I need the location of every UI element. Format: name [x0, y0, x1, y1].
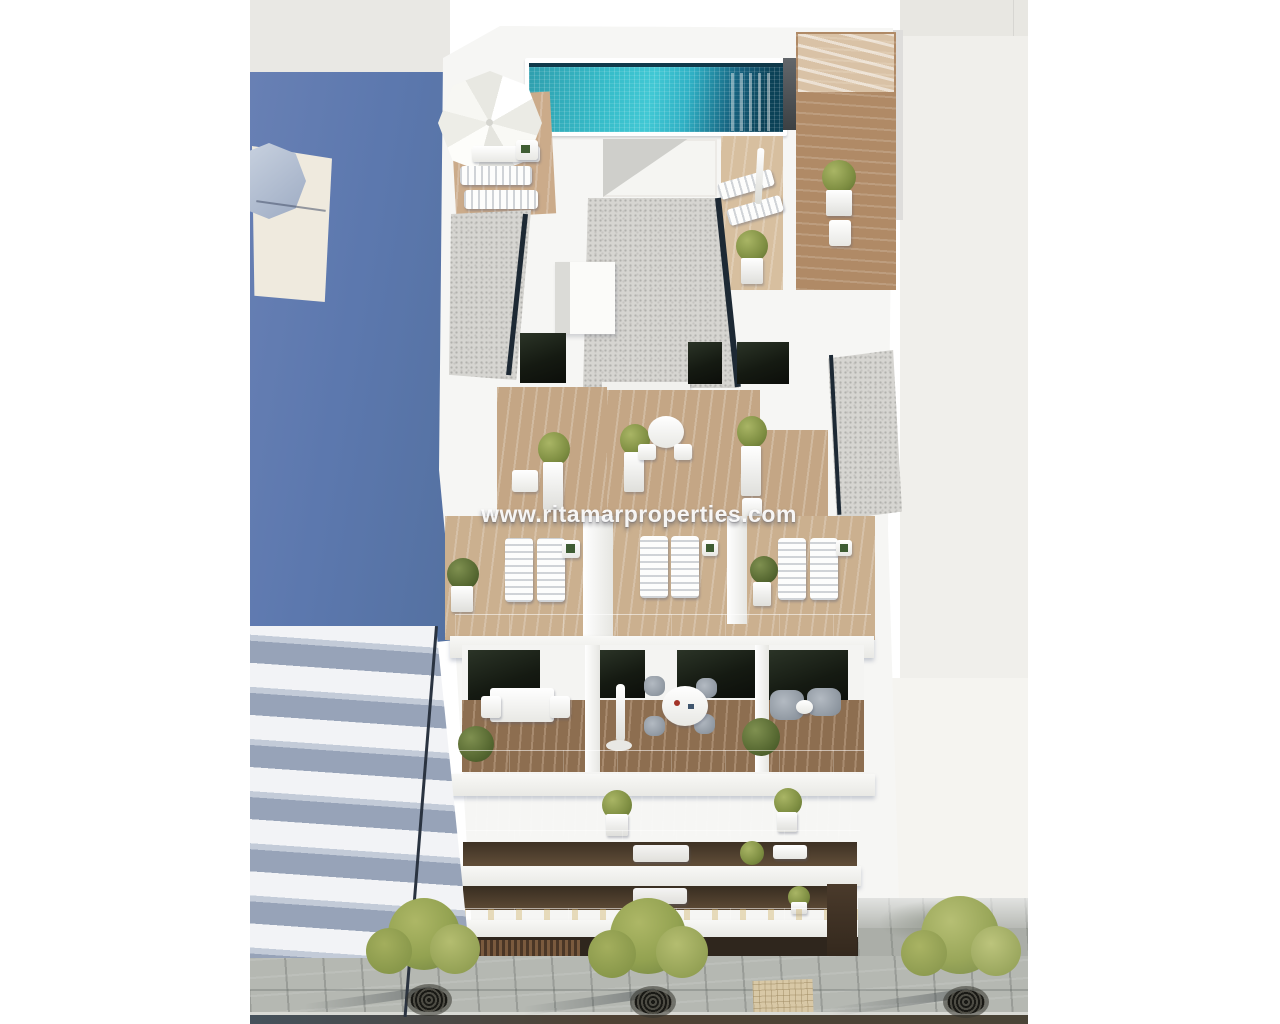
solarium-lounger-1a — [505, 538, 533, 602]
tree-3-foliage-b — [901, 930, 947, 976]
solarium-lounger-2a — [640, 536, 668, 598]
chimney-shaded-face — [555, 262, 570, 334]
balcony-chair-left-1 — [481, 696, 501, 718]
solarium-table-2 — [702, 540, 718, 556]
balcony-slab — [450, 774, 875, 796]
pool-water — [529, 63, 783, 132]
balcony-chair-left-2 — [550, 696, 570, 718]
building-corner-dark-band — [827, 884, 857, 962]
penthouse-chair-left — [512, 470, 538, 492]
penthouse-door-left — [520, 333, 566, 383]
tree-2-foliage-b — [588, 930, 636, 978]
penthouse-door-mid — [688, 342, 722, 384]
penthouse-door-right — [737, 342, 789, 384]
street-strip-top-left — [250, 0, 450, 73]
roof-chimney-box — [555, 262, 615, 334]
towel-green-2 — [706, 544, 714, 552]
tree-1-foliage-b — [366, 928, 412, 974]
penthouse-chair-center-1 — [638, 444, 656, 460]
solarium-table-1 — [562, 540, 580, 558]
balcony-side-table — [796, 700, 813, 714]
solarium-table-3 — [836, 540, 852, 556]
walkway-plant — [822, 160, 856, 194]
solarium-plant-2-pot — [753, 582, 771, 606]
rendering-scene: www.ritamarproperties.com — [250, 0, 1028, 1024]
solarium-lounger-1b — [537, 538, 565, 602]
tree-2-grate — [634, 990, 672, 1014]
rooftop-pool — [525, 58, 787, 136]
rooftop-parasol-hub — [486, 119, 493, 126]
balcony-round-table — [662, 686, 708, 726]
balcony-armchair-2 — [807, 688, 841, 716]
street-tree-3 — [895, 888, 1028, 1023]
floor3-plant — [740, 841, 764, 865]
neighbor-right-top-band — [900, 0, 1028, 36]
penthouse-plant-right-pot — [741, 446, 761, 496]
balcony-closed-parasol — [616, 684, 625, 742]
table-item-blue — [688, 704, 694, 709]
penthouse-plant-right — [737, 416, 767, 448]
rooftop-side-table-left — [516, 140, 538, 160]
solarium-plant-1-pot — [451, 586, 473, 612]
floor2-plant-2-pot — [777, 812, 797, 832]
solarium-plant-2 — [750, 556, 778, 584]
table-item-red — [674, 700, 680, 706]
doormat — [752, 979, 813, 1015]
balcony-chair-gray-1 — [644, 676, 665, 696]
towel-green-3 — [840, 544, 848, 552]
penthouse-plant-left — [538, 432, 570, 466]
solarium-lounger-3b — [810, 538, 838, 600]
rooftop-lounger-left-1 — [460, 166, 532, 185]
street-tree-1 — [358, 888, 508, 1023]
tree-3-grate — [947, 990, 985, 1014]
floor3-chairs — [773, 845, 807, 859]
balcony-balustrade — [455, 750, 868, 777]
walkway-chair — [829, 220, 851, 246]
rooftop-stairs — [798, 34, 894, 92]
towel-green-1 — [566, 544, 575, 553]
rendering-page: www.ritamarproperties.com — [0, 0, 1280, 1024]
tree-3-foliage-c — [971, 926, 1021, 976]
watermark: www.ritamarproperties.com — [250, 501, 1028, 528]
walkway-plant-pot — [826, 190, 852, 216]
balcony-chair-gray-3 — [644, 716, 665, 736]
sunken-terrace — [603, 139, 717, 197]
rooftop-plant-1-pot — [741, 258, 763, 284]
tree-1-grate — [410, 988, 448, 1012]
pool-reflection-loungers — [731, 73, 773, 131]
towel-green — [521, 145, 530, 153]
rooftop-lounger-left-2 — [464, 190, 538, 209]
floor3-dining-set — [633, 845, 689, 862]
solarium-divider-2 — [727, 516, 747, 624]
solarium-lounger-2b — [671, 536, 699, 598]
sunken-terrace-shadow — [603, 139, 717, 197]
street-tree-2 — [582, 892, 732, 1024]
tree-2-foliage-c — [656, 926, 708, 978]
tree-1-foliage-c — [430, 924, 480, 974]
penthouse-chair-center-2 — [674, 444, 692, 460]
solarium-lounger-3a — [778, 538, 806, 600]
neighbor-right-seam — [1013, 0, 1014, 36]
floor3-slab — [455, 866, 861, 886]
